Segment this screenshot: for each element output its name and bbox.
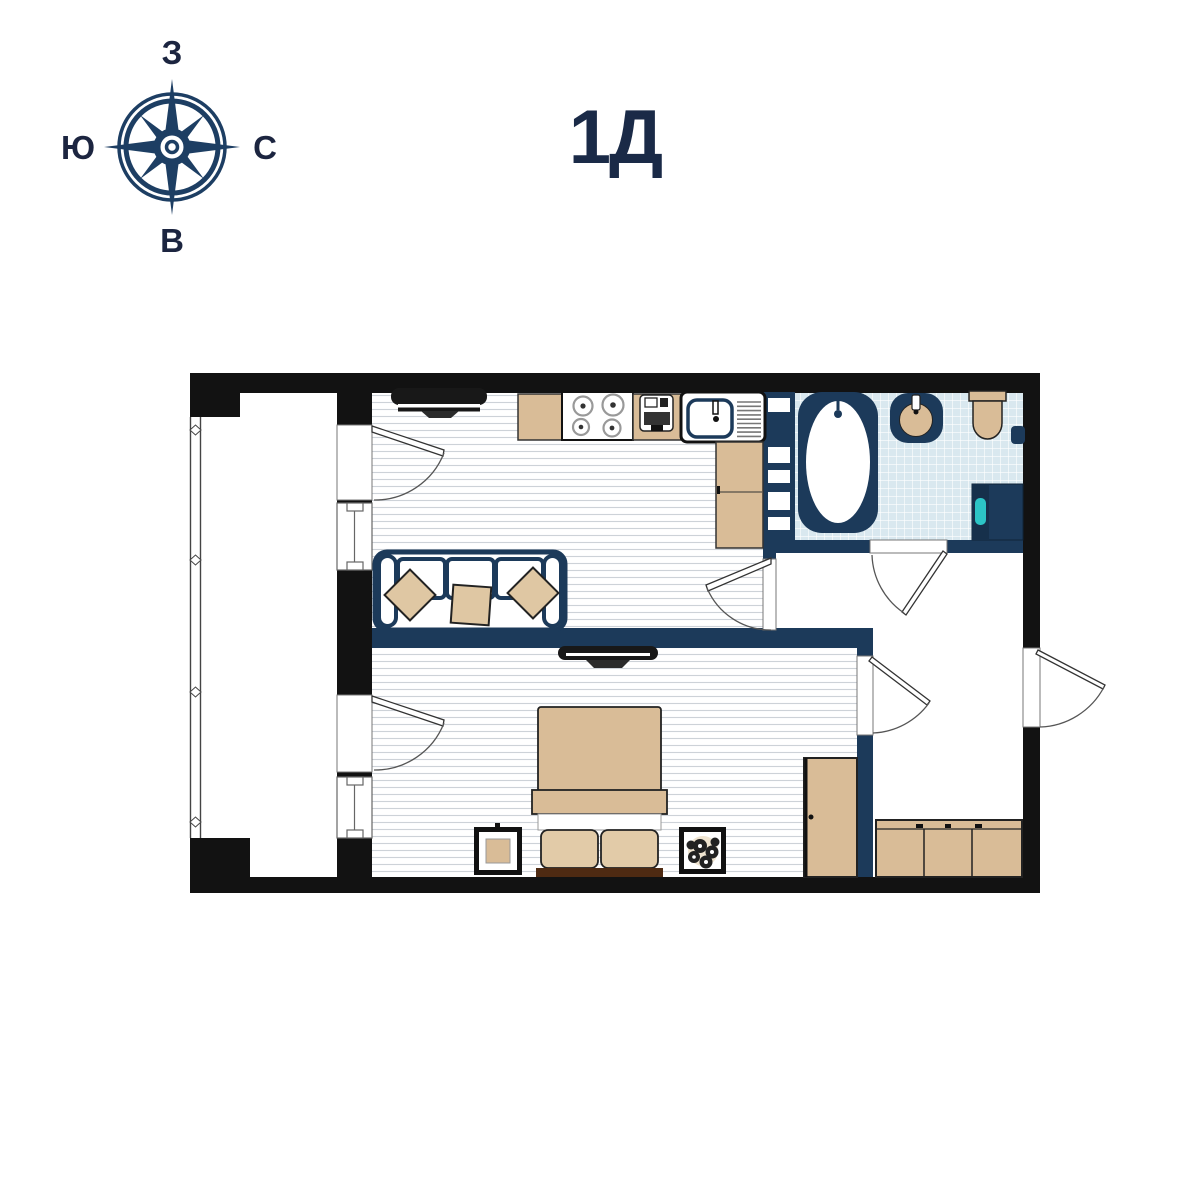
compass-label-right: С [253,129,277,166]
bathroom-sink-icon [890,393,943,443]
bedside-pouf [474,823,522,875]
page-title: 1Д [535,94,695,181]
plant-icon [679,827,726,874]
kitchen-window [337,503,372,570]
bathtub-icon [798,392,878,533]
hallway-wardrobe [876,820,1022,877]
compass-label-bottom: В [160,222,184,258]
washing-machine-icon [972,484,1023,540]
entrance-door [1036,650,1105,727]
compass-label-left: Ю [61,129,95,166]
kitchen-tall-cabinet [716,442,763,548]
compass-label-top: З [162,34,183,71]
floor-plan-drawing [150,360,1120,905]
bathroom-door [872,551,947,615]
kitchen-counter-left [518,394,563,440]
bedroom-hall-door [869,657,930,733]
stove-icon [562,392,633,440]
compass-rose-icon: З Ю С В [60,26,285,258]
bedroom-wardrobe [804,758,857,877]
kitchen-counter-mid [633,394,681,440]
floor-plan-page: З Ю С В 1Д [0,0,1200,1200]
bedroom-window [337,777,372,838]
balcony-glazing [190,417,201,838]
kitchen-sink-icon [681,392,765,442]
coffee-machine-icon [640,395,673,431]
compass-star [104,79,240,215]
sofa-icon [375,552,565,630]
